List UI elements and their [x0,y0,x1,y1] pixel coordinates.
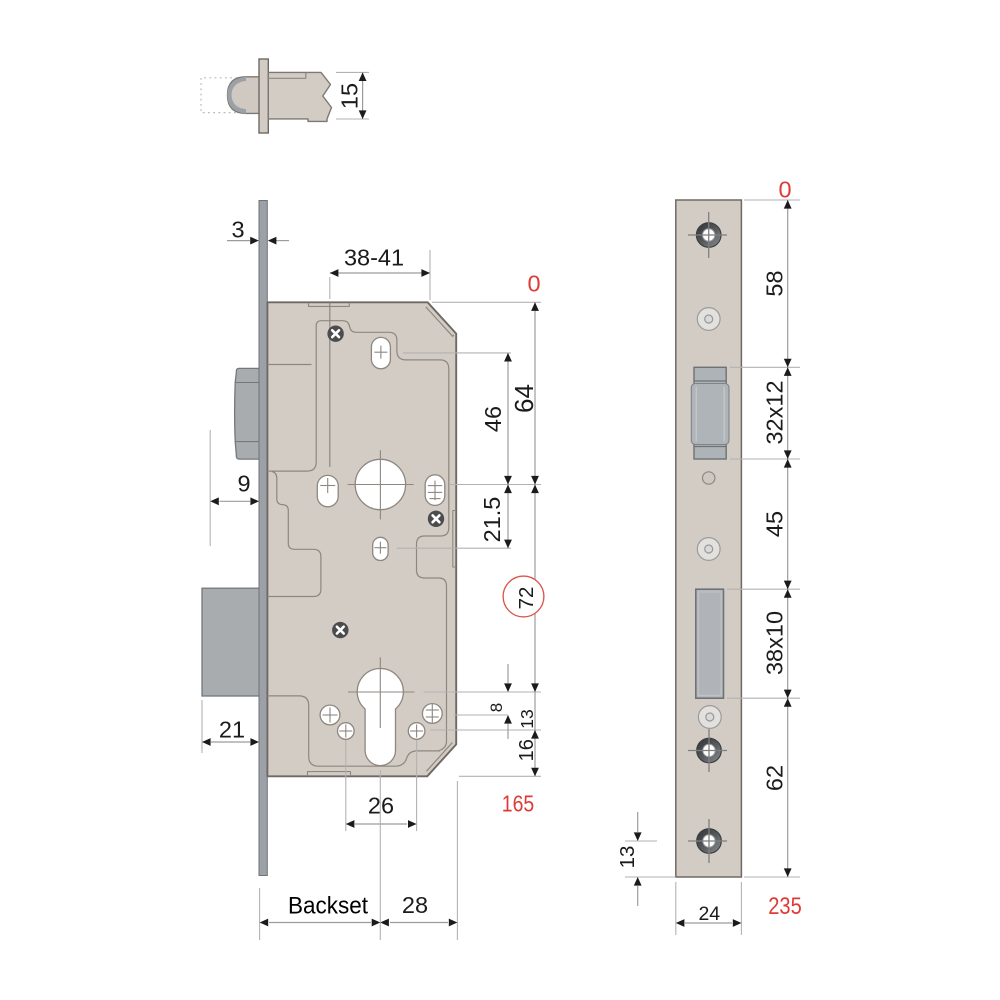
svg-text:15: 15 [337,83,363,109]
svg-text:165: 165 [502,791,535,817]
svg-text:38-41: 38-41 [344,245,404,271]
svg-text:21: 21 [219,717,245,743]
svg-text:62: 62 [762,765,788,791]
svg-text:64: 64 [509,384,539,413]
svg-text:3: 3 [231,217,244,243]
svg-text:13: 13 [517,709,537,728]
svg-text:Backset: Backset [288,893,368,920]
svg-text:24: 24 [698,903,720,925]
svg-text:32x12: 32x12 [762,380,788,444]
svg-text:13: 13 [616,846,639,869]
svg-text:8: 8 [487,703,506,712]
svg-text:38x10: 38x10 [762,611,788,675]
svg-text:28: 28 [402,892,428,918]
svg-text:45: 45 [762,511,788,537]
svg-text:72: 72 [515,587,538,610]
svg-text:21.5: 21.5 [479,497,505,543]
svg-text:26: 26 [368,793,394,819]
svg-text:9: 9 [237,471,250,497]
svg-text:0: 0 [527,271,540,297]
svg-text:58: 58 [762,270,788,296]
svg-text:46: 46 [480,406,506,432]
svg-text:235: 235 [768,893,802,920]
svg-text:16: 16 [516,739,538,761]
svg-text:0: 0 [778,177,791,203]
